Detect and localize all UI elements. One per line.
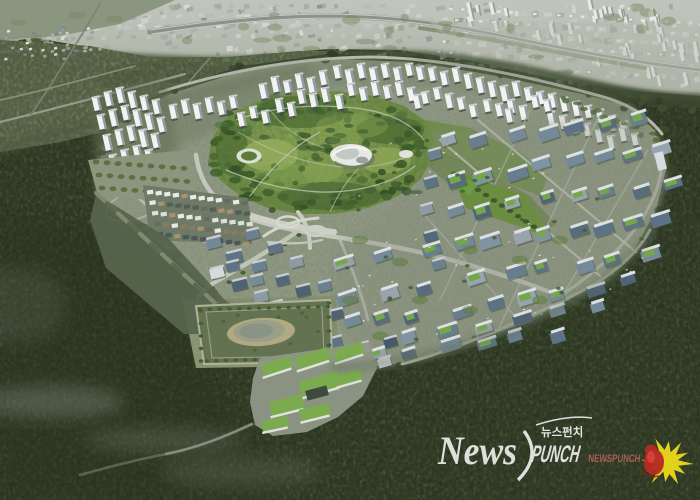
svg-text:PUNCH: PUNCH [529,441,584,468]
svg-text:NEWSPUNCH: NEWSPUNCH [588,453,641,465]
svg-text:뉴스펀치: 뉴스펀치 [541,425,583,439]
svg-text:News: News [437,428,517,473]
